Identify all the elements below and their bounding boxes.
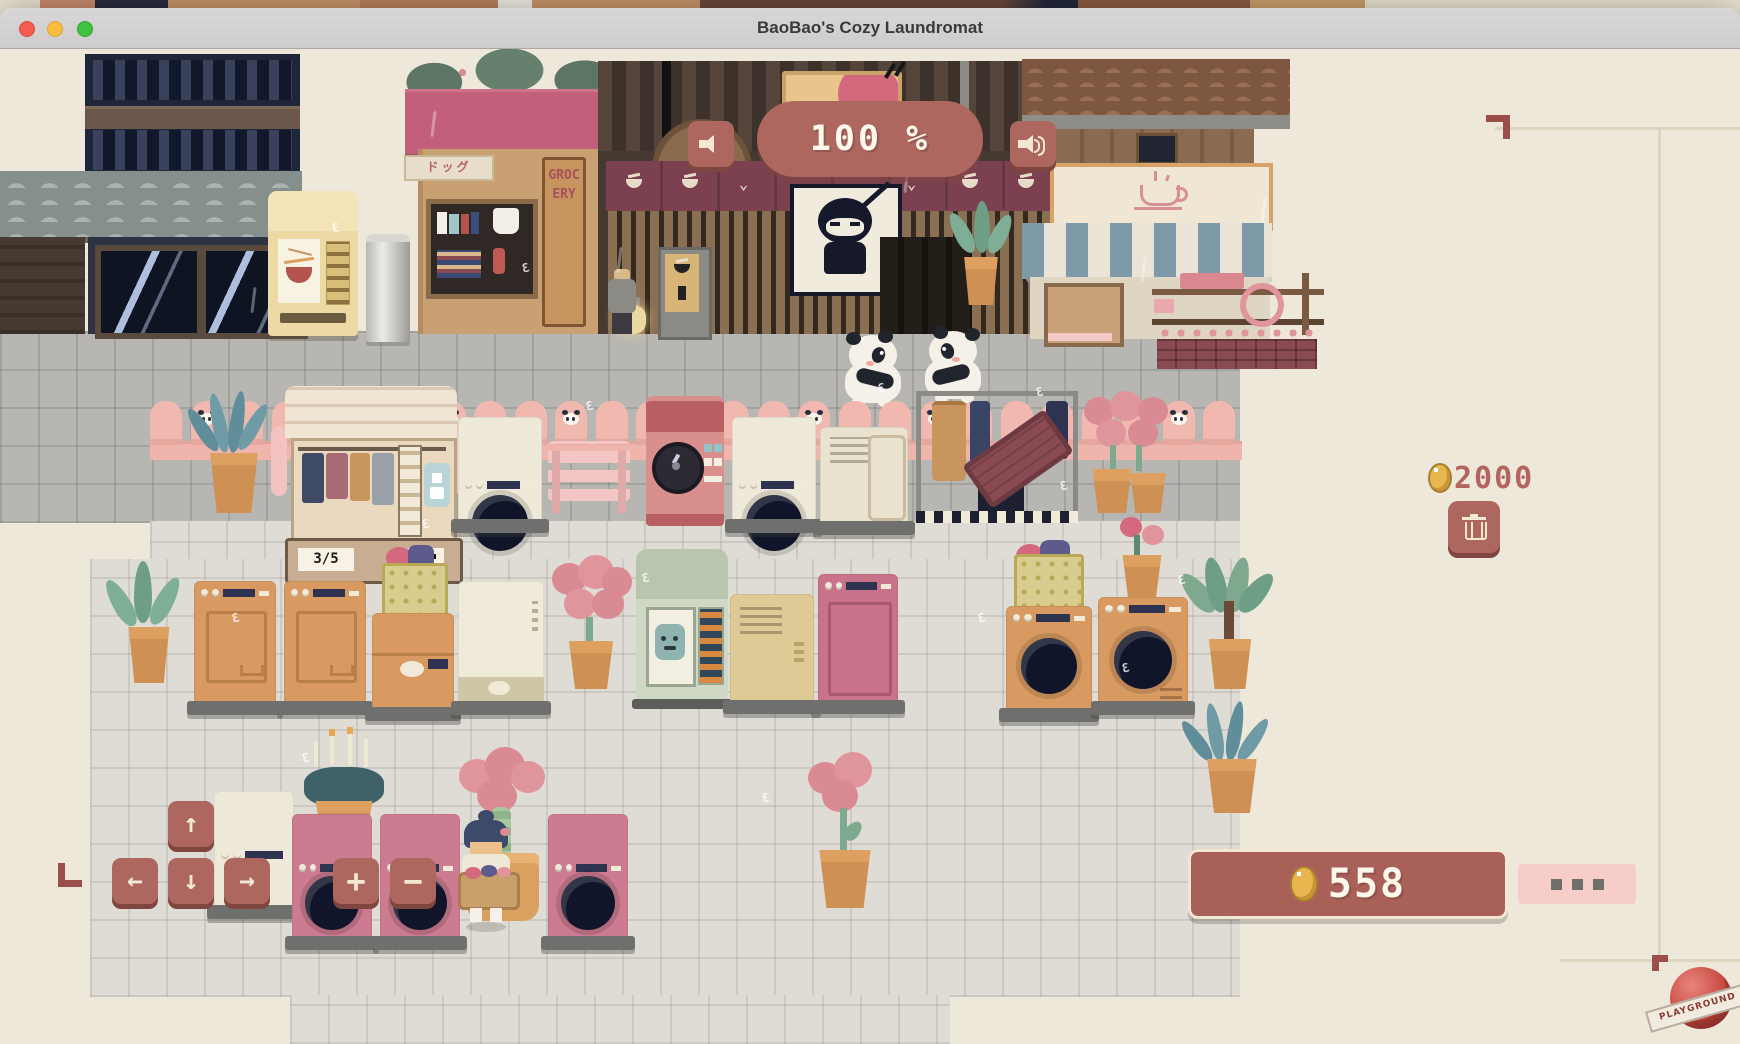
washer-orange-with-flowerpot[interactable] xyxy=(1098,517,1188,719)
chevron-down-icon: ⌄ xyxy=(739,175,748,193)
dpad-right-button[interactable]: → xyxy=(224,858,270,904)
flower-pot-large[interactable] xyxy=(548,561,634,709)
selection-corner-top-right xyxy=(1486,115,1510,139)
app-window: BaoBao's Cozy Laundromat xyxy=(0,8,1740,1044)
npc-customer[interactable] xyxy=(606,269,638,334)
volume-pill: 100 % xyxy=(757,101,983,177)
laundry-bag xyxy=(424,463,450,507)
coin-balance-top: 2000 xyxy=(1428,461,1548,493)
dryer-cream[interactable] xyxy=(820,427,908,527)
minus-icon: − xyxy=(403,862,422,900)
guide-line-horizontal xyxy=(1495,127,1740,130)
potted-plant-leafy[interactable] xyxy=(110,561,188,709)
knit-doll xyxy=(493,248,505,274)
chevron-down-icon: ⌄ xyxy=(907,175,916,193)
ramen-bowl-art xyxy=(286,267,312,283)
guide-line-vertical xyxy=(1658,127,1661,959)
washer-orange-toploader[interactable] xyxy=(194,581,276,707)
volume-up-button[interactable] xyxy=(1010,121,1056,167)
game-canvas[interactable]: ドッグ GROCERY xyxy=(0,49,1740,1044)
grocery-window xyxy=(426,199,538,299)
washer-pink[interactable] xyxy=(818,574,898,706)
washer-orange-with-basket[interactable] xyxy=(1006,554,1092,719)
shelf-ladder xyxy=(398,445,422,537)
washing-machine-white[interactable] xyxy=(458,417,542,525)
bowl-icon xyxy=(626,179,642,188)
panda-customer[interactable] xyxy=(842,335,904,407)
money-amount: 558 xyxy=(1328,861,1406,907)
dpad-down-button[interactable]: ↓ xyxy=(168,858,214,904)
trash-icon xyxy=(1462,514,1486,540)
dark-window xyxy=(95,245,203,339)
vending-buttons xyxy=(326,241,350,305)
more-button[interactable] xyxy=(1522,864,1632,904)
washer-pink-bottom[interactable] xyxy=(548,814,628,942)
playground-logo: PLAYGROUND xyxy=(1652,961,1740,1044)
zoom-out-button[interactable]: − xyxy=(390,858,436,904)
wooden-stairs xyxy=(0,237,85,334)
hanging-clothes xyxy=(326,453,348,499)
tiled-roof xyxy=(0,171,302,243)
fence-post xyxy=(596,401,628,445)
volume-down-button[interactable] xyxy=(688,121,734,167)
grocery-shop: ドッグ GROCERY xyxy=(392,49,627,339)
detergent-vending-machine[interactable] xyxy=(636,549,728,709)
potted-plant-tall[interactable] xyxy=(950,201,1012,334)
washer-orange-toploader[interactable] xyxy=(284,581,366,707)
bowl-icon xyxy=(682,179,698,188)
arrow-right-icon: → xyxy=(239,866,255,896)
flower-pot-bottom-right[interactable] xyxy=(800,754,888,929)
arrow-down-icon: ↓ xyxy=(183,866,199,896)
pink-bench[interactable] xyxy=(548,441,630,515)
coin-icon xyxy=(1290,866,1318,902)
rack-count-badge: 3/5 xyxy=(298,548,354,571)
hanging-coat xyxy=(932,401,966,481)
coffee-cup-icon xyxy=(1140,185,1180,206)
volume-percent: 100 % xyxy=(810,119,930,159)
zoom-in-button[interactable]: + xyxy=(333,858,379,904)
delete-mode-button[interactable] xyxy=(1448,501,1500,553)
clothes-display-rack[interactable] xyxy=(916,391,1078,529)
cafe-roof xyxy=(1022,59,1290,115)
hanging-clothes xyxy=(372,453,394,505)
potted-agave-right[interactable] xyxy=(1188,701,1276,819)
hanging-clothes xyxy=(302,453,324,503)
flower-shelf xyxy=(1152,273,1324,337)
izakaya-building xyxy=(0,49,302,334)
window-title: BaoBao's Cozy Laundromat xyxy=(0,8,1740,48)
vintage-record-washer[interactable] xyxy=(646,396,724,526)
selection-corner-bottom-left xyxy=(58,863,82,887)
hanging-clothes xyxy=(350,453,370,501)
dryer-khaki[interactable] xyxy=(730,594,814,706)
arrow-up-icon: ↑ xyxy=(183,809,199,839)
fence-post xyxy=(555,401,587,445)
speaker-icon xyxy=(699,134,723,154)
plus-icon: + xyxy=(346,862,365,900)
ramen-vending-machine xyxy=(268,191,358,336)
arrow-left-icon: ← xyxy=(127,866,143,896)
katakana-sign: ドッグ xyxy=(404,155,494,181)
cafe-building xyxy=(1022,59,1290,339)
carried-basket xyxy=(458,872,520,910)
dpad-left-button[interactable]: ← xyxy=(112,858,158,904)
coin-icon xyxy=(1428,463,1452,493)
brick-planter xyxy=(1157,339,1317,369)
ellipsis-icon xyxy=(1551,879,1562,890)
plaza-tiles xyxy=(290,995,950,1044)
stall-awning xyxy=(285,386,457,438)
mascot-face xyxy=(655,624,685,660)
record-disc xyxy=(652,442,704,494)
dpad-up-button[interactable]: ↑ xyxy=(168,801,214,847)
washer-with-basket[interactable] xyxy=(372,561,454,719)
menu-stand xyxy=(658,247,712,340)
fence-post xyxy=(1203,401,1235,445)
flower-pots-pink[interactable] xyxy=(1082,397,1174,527)
player-character[interactable] xyxy=(452,816,524,946)
grocery-sign: GROCERY xyxy=(542,157,586,327)
potted-agave[interactable] xyxy=(196,391,272,527)
washer-cream[interactable] xyxy=(458,581,544,707)
coin-amount: 2000 xyxy=(1454,461,1534,496)
cafe-awning xyxy=(1022,223,1272,279)
fence-post xyxy=(150,401,182,445)
bowl-icon xyxy=(962,179,978,188)
washing-machine-white[interactable] xyxy=(732,417,816,525)
potted-palm[interactable] xyxy=(1188,561,1272,711)
titlebar[interactable]: BaoBao's Cozy Laundromat xyxy=(0,8,1740,49)
cafe-sign xyxy=(1050,163,1273,231)
money-pill: 558 xyxy=(1188,849,1508,919)
speaker-waves-icon xyxy=(1018,134,1042,154)
